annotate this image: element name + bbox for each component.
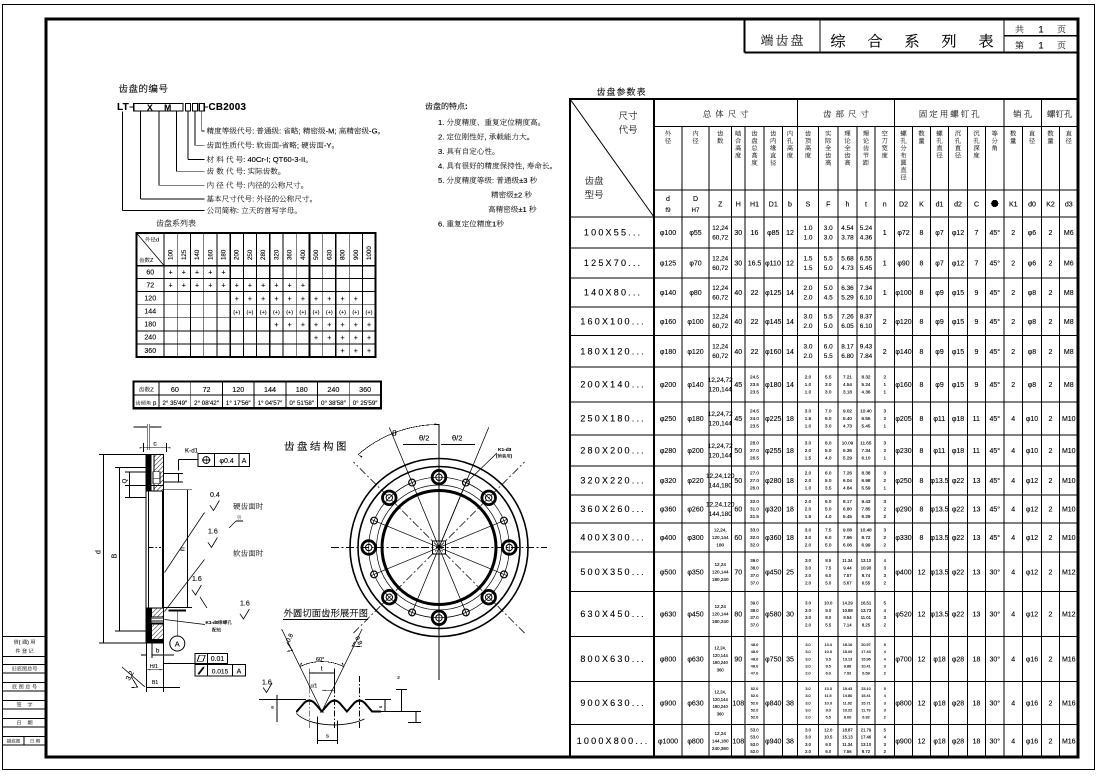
svg-text:φ230: φ230 <box>895 448 911 455</box>
svg-text:(+): (+) <box>366 310 373 316</box>
svg-text:+: + <box>235 296 239 303</box>
svg-text:1: 1 <box>883 456 886 461</box>
svg-text:φ280: φ280 <box>660 448 676 455</box>
svg-text:φ145: φ145 <box>765 319 781 326</box>
svg-text:5.5: 5.5 <box>824 353 833 360</box>
svg-text:23.5: 23.5 <box>750 390 759 395</box>
svg-text:(+): (+) <box>326 310 333 316</box>
svg-text:40: 40 <box>734 349 742 356</box>
svg-text:11.5: 11.5 <box>825 694 832 698</box>
svg-text:2.0: 2.0 <box>805 478 812 483</box>
svg-text:2: 2 <box>883 478 886 483</box>
svg-text:53.0: 53.0 <box>750 728 759 733</box>
svg-text:φ160: φ160 <box>895 382 911 389</box>
svg-text:8: 8 <box>920 230 924 237</box>
svg-text:180,240: 180,240 <box>713 704 729 709</box>
svg-text:φ12: φ12 <box>1026 535 1038 542</box>
svg-text:12,24,: 12,24, <box>714 645 726 650</box>
svg-text:1.6: 1.6 <box>192 576 202 583</box>
svg-text:d1: d1 <box>936 202 944 209</box>
svg-text:c/1: c/1 <box>311 684 318 690</box>
svg-text:72: 72 <box>146 282 154 289</box>
svg-text:48.0: 48.0 <box>751 650 758 654</box>
svg-text:12,24: 12,24 <box>714 562 726 567</box>
svg-text:M8: M8 <box>1064 349 1074 356</box>
svg-text:φ225: φ225 <box>765 416 781 423</box>
svg-text:13: 13 <box>973 535 981 542</box>
svg-text:2.0: 2.0 <box>805 716 810 720</box>
svg-text:K: K <box>919 202 924 209</box>
svg-text:7.84: 7.84 <box>860 353 873 360</box>
svg-text:1.5: 1.5 <box>804 255 813 262</box>
svg-text:11.34: 11.34 <box>842 742 853 747</box>
svg-text:M8: M8 <box>1064 319 1074 326</box>
svg-text:φ55: φ55 <box>689 230 701 237</box>
svg-text:240: 240 <box>327 385 339 394</box>
svg-text:F: F <box>826 202 830 209</box>
svg-text:d2: d2 <box>954 202 962 209</box>
svg-text:52.0: 52.0 <box>751 701 758 705</box>
svg-text:2: 2 <box>1049 261 1053 268</box>
svg-text:4.36: 4.36 <box>862 390 871 395</box>
svg-text:5.0: 5.0 <box>824 285 833 292</box>
svg-text:45°: 45° <box>989 534 1000 542</box>
svg-text:+: + <box>288 296 292 303</box>
svg-text:+: + <box>221 270 225 277</box>
svg-text:2.0: 2.0 <box>804 294 813 301</box>
svg-text:70: 70 <box>734 569 742 576</box>
svg-text:12: 12 <box>786 230 794 237</box>
svg-text:8.0: 8.0 <box>826 709 831 713</box>
svg-text:φ22: φ22 <box>952 569 964 576</box>
svg-text:,: , <box>484 133 486 142</box>
svg-text:+: + <box>221 283 225 290</box>
svg-text:5.5: 5.5 <box>824 314 833 321</box>
svg-text:180,240: 180,240 <box>712 577 729 582</box>
svg-text:(: ( <box>19 640 21 646</box>
svg-text:5.24: 5.24 <box>860 225 873 232</box>
svg-text:5.29: 5.29 <box>841 294 854 301</box>
svg-text:+: + <box>340 296 344 303</box>
svg-text:d3: d3 <box>1065 202 1073 209</box>
svg-text:2: 2 <box>1049 448 1053 455</box>
svg-text:9: 9 <box>975 382 979 389</box>
svg-text:φ15: φ15 <box>952 382 964 389</box>
svg-text:M16: M16 <box>1062 738 1076 745</box>
svg-text:12: 12 <box>786 261 794 268</box>
svg-text:5: 5 <box>884 643 886 647</box>
svg-text:45°: 45° <box>989 260 1000 268</box>
svg-text:60: 60 <box>734 507 742 514</box>
svg-text:φ16: φ16 <box>1026 657 1038 664</box>
svg-text:10.0: 10.0 <box>824 600 833 605</box>
svg-text:φ260: φ260 <box>687 507 703 514</box>
svg-text:27.0: 27.0 <box>750 448 759 453</box>
svg-text:18: 18 <box>973 657 981 664</box>
svg-text:8.17: 8.17 <box>841 344 854 351</box>
svg-text:s: s <box>326 734 329 740</box>
svg-text:-Y: -Y <box>324 141 332 150</box>
svg-text:4: 4 <box>1011 448 1015 455</box>
svg-text:6.58: 6.58 <box>862 672 869 676</box>
svg-text:φ6: φ6 <box>1028 230 1037 237</box>
svg-text:7.96: 7.96 <box>843 535 852 540</box>
svg-text:2.0: 2.0 <box>805 448 812 453</box>
svg-text:1: 1 <box>492 220 496 229</box>
svg-text:H7: H7 <box>692 207 700 214</box>
svg-text:3.0: 3.0 <box>825 424 832 429</box>
svg-text:2: 2 <box>1049 535 1053 542</box>
svg-text:φ160: φ160 <box>765 349 781 356</box>
svg-text:φ13.5: φ13.5 <box>930 478 948 485</box>
svg-text:48.0: 48.0 <box>751 665 758 669</box>
svg-text:φ9: φ9 <box>935 349 944 356</box>
svg-text:10.22: 10.22 <box>843 709 853 713</box>
svg-text:φ940: φ940 <box>765 738 781 745</box>
svg-text:7: 7 <box>975 230 979 237</box>
svg-text:120,144: 120,144 <box>709 420 733 427</box>
svg-text:100X55...: 100X55... <box>584 228 642 238</box>
svg-text:A: A <box>237 669 242 676</box>
svg-text:120,144: 120,144 <box>709 452 733 459</box>
svg-text:14.80: 14.80 <box>843 694 853 698</box>
svg-text:6.29: 6.29 <box>862 514 871 519</box>
svg-text:15.41: 15.41 <box>861 694 871 698</box>
svg-text:φ18: φ18 <box>933 657 945 664</box>
svg-text:+: + <box>327 335 331 342</box>
svg-text:5.29: 5.29 <box>843 456 852 461</box>
svg-text:200X140...: 200X140... <box>580 380 646 390</box>
svg-text:24.5: 24.5 <box>750 375 759 380</box>
svg-text:+: + <box>354 348 358 355</box>
svg-text:φ1000: φ1000 <box>658 738 678 745</box>
svg-text:6.0: 6.0 <box>825 416 832 421</box>
svg-text:2: 2 <box>1049 701 1053 708</box>
svg-text:+: + <box>367 335 371 342</box>
svg-text:2: 2 <box>1011 382 1015 389</box>
svg-text:+: + <box>182 283 186 290</box>
svg-text:3: 3 <box>883 409 886 414</box>
svg-text:φ8: φ8 <box>1028 382 1037 389</box>
svg-text:+: + <box>248 283 252 290</box>
svg-text:4: 4 <box>884 657 886 661</box>
svg-text:φ11: φ11 <box>933 448 945 455</box>
svg-text:50: 50 <box>734 448 742 455</box>
svg-text:12,24,72: 12,24,72 <box>708 377 733 384</box>
svg-text:12: 12 <box>918 569 926 576</box>
svg-text:φ840: φ840 <box>765 701 781 708</box>
svg-text:3.0: 3.0 <box>805 735 811 740</box>
svg-text:4: 4 <box>1011 612 1015 619</box>
svg-text:φ13.5: φ13.5 <box>930 612 948 619</box>
svg-text:8: 8 <box>920 382 924 389</box>
svg-text:5.0: 5.0 <box>825 543 832 548</box>
svg-text:3.0: 3.0 <box>825 390 832 395</box>
svg-text:2: 2 <box>1011 261 1015 268</box>
svg-text:10.0: 10.0 <box>825 701 832 705</box>
svg-text:7.57: 7.57 <box>843 573 852 578</box>
svg-text:120,144: 120,144 <box>713 697 729 702</box>
svg-text:H1: H1 <box>750 202 759 209</box>
svg-text:φ13.5: φ13.5 <box>930 535 948 542</box>
svg-text:M6: M6 <box>1064 261 1074 268</box>
svg-text:3: 3 <box>883 528 886 533</box>
svg-text:53.0: 53.0 <box>750 742 759 747</box>
svg-text:4.73: 4.73 <box>843 424 852 429</box>
svg-text:φ22: φ22 <box>952 478 964 485</box>
svg-text:9.02: 9.02 <box>843 409 852 414</box>
svg-text:+: + <box>261 296 265 303</box>
svg-text:2.0: 2.0 <box>805 749 811 754</box>
svg-text:+: + <box>354 322 358 329</box>
svg-text:φ8: φ8 <box>1028 319 1037 326</box>
svg-text:9.0: 9.0 <box>825 742 831 747</box>
svg-text:25: 25 <box>786 569 794 576</box>
svg-text:φ360: φ360 <box>660 507 676 514</box>
svg-text:φ500: φ500 <box>660 569 676 576</box>
svg-text:3.0: 3.0 <box>805 643 810 647</box>
svg-text:M: M <box>164 102 171 112</box>
svg-text:3.0: 3.0 <box>825 382 832 387</box>
svg-text:12,24,120: 12,24,120 <box>706 473 735 480</box>
svg-text:800: 800 <box>340 249 347 260</box>
svg-text:11: 11 <box>973 416 980 423</box>
svg-text:3.0: 3.0 <box>805 728 811 733</box>
svg-text:180X120...: 180X120... <box>580 346 646 356</box>
svg-text:13.10: 13.10 <box>861 742 872 747</box>
svg-text:3.: 3. <box>438 147 444 156</box>
svg-text:1: 1 <box>1039 41 1044 51</box>
svg-text:6.55: 6.55 <box>860 255 873 262</box>
svg-text:6.0: 6.0 <box>825 471 832 476</box>
svg-text:φ18: φ18 <box>933 701 945 708</box>
svg-text:144: 144 <box>144 309 156 316</box>
svg-text:360: 360 <box>717 712 725 717</box>
svg-text:120,144: 120,144 <box>712 569 729 574</box>
svg-text:2.0: 2.0 <box>805 375 812 380</box>
svg-text:144: 144 <box>264 385 276 394</box>
svg-text::: : <box>252 127 254 136</box>
svg-text:+: + <box>340 335 344 342</box>
svg-text:14: 14 <box>786 349 794 356</box>
svg-text:φ360: φ360 <box>765 535 781 542</box>
svg-text:24.0: 24.0 <box>750 416 759 421</box>
svg-text:φ630: φ630 <box>660 612 676 619</box>
svg-text:M16: M16 <box>1062 701 1076 708</box>
svg-text:47.0: 47.0 <box>751 672 758 676</box>
svg-text:1.0: 1.0 <box>805 390 812 395</box>
svg-text:60: 60 <box>734 535 742 542</box>
svg-text:4.0: 4.0 <box>825 514 832 519</box>
svg-text:120: 120 <box>144 296 156 303</box>
svg-text:18: 18 <box>786 478 794 485</box>
svg-text:1.6: 1.6 <box>208 529 218 536</box>
svg-text:2: 2 <box>1049 290 1053 297</box>
svg-text:1: 1 <box>883 382 886 387</box>
svg-text:0.4: 0.4 <box>210 492 220 499</box>
svg-text:108: 108 <box>732 701 744 708</box>
svg-text:4: 4 <box>884 650 886 654</box>
svg-text:2: 2 <box>1049 657 1053 664</box>
svg-text:3.0: 3.0 <box>805 409 812 414</box>
svg-text:φ8: φ8 <box>1028 290 1037 297</box>
svg-text:6.36: 6.36 <box>841 285 854 292</box>
svg-text:12.0: 12.0 <box>824 728 833 733</box>
svg-text:9.43: 9.43 <box>860 344 873 351</box>
svg-text:f9: f9 <box>665 207 671 214</box>
svg-text:φ22: φ22 <box>952 612 964 619</box>
svg-text:φ100: φ100 <box>895 290 911 297</box>
svg-text:60°: 60° <box>316 657 324 663</box>
svg-text:125: 125 <box>181 249 188 260</box>
svg-text:4.36: 4.36 <box>860 234 873 241</box>
svg-text:M10: M10 <box>1062 416 1076 423</box>
svg-text:39.0: 39.0 <box>750 600 759 605</box>
svg-text:M8: M8 <box>1064 382 1074 389</box>
svg-text:6.10: 6.10 <box>860 294 873 301</box>
svg-text:6.55: 6.55 <box>862 416 871 421</box>
svg-text:5.45: 5.45 <box>860 265 873 272</box>
svg-text:280: 280 <box>260 249 267 260</box>
svg-text:φ13.5: φ13.5 <box>930 569 948 576</box>
svg-text:-G: -G <box>369 127 378 136</box>
svg-text:15.71: 15.71 <box>861 701 871 705</box>
svg-text:1: 1 <box>1039 25 1044 35</box>
svg-text:16.5: 16.5 <box>748 261 762 268</box>
svg-text:3.0: 3.0 <box>804 314 813 321</box>
svg-text:+: + <box>195 270 199 277</box>
svg-text:6.0: 6.0 <box>825 749 831 754</box>
svg-text:11.34: 11.34 <box>842 558 853 563</box>
svg-text:φ11: φ11 <box>933 416 945 423</box>
svg-text:22: 22 <box>751 290 759 297</box>
svg-text:8: 8 <box>920 349 924 356</box>
svg-text:3.0: 3.0 <box>805 615 811 620</box>
svg-text:37.0: 37.0 <box>750 580 759 585</box>
svg-text:1: 1 <box>883 261 887 268</box>
svg-text:5.5: 5.5 <box>825 375 832 380</box>
svg-text:+: + <box>301 322 305 329</box>
svg-text:108: 108 <box>732 738 744 745</box>
svg-text:7: 7 <box>975 261 979 268</box>
svg-text:3.0: 3.0 <box>805 441 812 446</box>
svg-text:X: X <box>147 102 153 112</box>
svg-text:±3: ±3 <box>519 176 527 185</box>
svg-text:3.0: 3.0 <box>805 657 810 661</box>
svg-text:3.0: 3.0 <box>805 608 811 613</box>
svg-text:38.0: 38.0 <box>750 608 759 613</box>
svg-text:13.73: 13.73 <box>861 608 872 613</box>
svg-text:38: 38 <box>786 701 794 708</box>
svg-text:13: 13 <box>973 478 981 485</box>
svg-text:2.0: 2.0 <box>804 285 813 292</box>
svg-text:φ140: φ140 <box>895 349 911 356</box>
svg-text:22: 22 <box>751 319 759 326</box>
svg-text:60: 60 <box>171 385 179 394</box>
svg-text:0.01: 0.01 <box>211 656 225 663</box>
svg-text:11.65: 11.65 <box>860 441 872 446</box>
svg-text:160: 160 <box>207 249 214 260</box>
svg-text:18: 18 <box>786 448 794 455</box>
svg-text:1.0: 1.0 <box>805 382 812 387</box>
svg-text:θ/2: θ/2 <box>419 434 429 443</box>
svg-text:17.46: 17.46 <box>861 735 872 740</box>
svg-text:3: 3 <box>884 701 886 705</box>
svg-text:360X260...: 360X260... <box>580 504 646 514</box>
svg-text:18: 18 <box>973 701 981 708</box>
svg-text:7.92: 7.92 <box>844 672 851 676</box>
svg-text:D: D <box>693 196 698 203</box>
svg-text:8.5: 8.5 <box>825 558 831 563</box>
svg-text:12: 12 <box>918 657 926 664</box>
svg-text:180,240: 180,240 <box>712 619 729 624</box>
svg-text:D2: D2 <box>899 202 908 209</box>
svg-text:60,72: 60,72 <box>712 323 728 330</box>
svg-text:180: 180 <box>221 249 228 260</box>
svg-text:φ140: φ140 <box>660 290 676 297</box>
svg-text:320: 320 <box>273 249 280 260</box>
svg-text:900X630...: 900X630... <box>580 698 646 708</box>
svg-text:2.0: 2.0 <box>805 499 812 504</box>
svg-text:φ9: φ9 <box>935 290 944 297</box>
svg-text:(+): (+) <box>286 310 293 316</box>
svg-text:;: ; <box>297 141 299 150</box>
svg-text:80: 80 <box>734 612 742 619</box>
svg-text:B: B <box>112 553 119 558</box>
svg-text:5.45: 5.45 <box>862 424 871 429</box>
svg-text:3: 3 <box>884 665 886 669</box>
svg-text:9.44: 9.44 <box>843 566 852 571</box>
svg-text:8.74: 8.74 <box>862 573 871 578</box>
svg-text::: : <box>252 195 254 204</box>
svg-text:φ450: φ450 <box>687 612 703 619</box>
svg-text:Z: Z <box>718 202 723 209</box>
svg-text:15.96: 15.96 <box>861 657 871 661</box>
svg-text:31.5: 31.5 <box>750 514 759 519</box>
svg-text:5.0: 5.0 <box>824 323 833 330</box>
svg-text:4: 4 <box>1011 478 1015 485</box>
svg-text:32.0: 32.0 <box>750 543 759 548</box>
svg-text:2: 2 <box>1011 230 1015 237</box>
svg-text:2: 2 <box>883 375 886 380</box>
svg-text:1° 04′57″: 1° 04′57″ <box>258 400 284 407</box>
svg-text:13.10: 13.10 <box>861 558 872 563</box>
svg-text:12,24,72: 12,24,72 <box>708 443 733 450</box>
svg-text:30°: 30° <box>989 700 1000 708</box>
svg-text:+: + <box>327 296 331 303</box>
svg-text:320X220...: 320X220... <box>580 476 646 486</box>
svg-text:53.0: 53.0 <box>750 735 759 740</box>
svg-text:45°: 45° <box>989 447 1000 455</box>
svg-text:1.5: 1.5 <box>805 514 812 519</box>
svg-text:φ205: φ205 <box>895 416 911 423</box>
svg-text:φ28: φ28 <box>952 701 964 708</box>
svg-text:φ15: φ15 <box>952 290 964 297</box>
svg-text:φ80: φ80 <box>689 290 701 297</box>
svg-text:45°: 45° <box>989 381 1000 389</box>
svg-text:12,24,: 12,24, <box>714 689 726 694</box>
svg-text:12,24: 12,24 <box>712 285 728 292</box>
svg-text:12,24,72: 12,24,72 <box>708 411 733 418</box>
svg-text:φ85: φ85 <box>767 230 779 237</box>
svg-text:φ320: φ320 <box>660 478 676 485</box>
svg-text:2.: 2. <box>438 133 444 142</box>
svg-text:8: 8 <box>920 261 924 268</box>
svg-text:45°: 45° <box>989 415 1000 423</box>
svg-text:14: 14 <box>786 319 794 326</box>
svg-text:+: + <box>274 322 278 329</box>
svg-text:900: 900 <box>353 249 360 260</box>
